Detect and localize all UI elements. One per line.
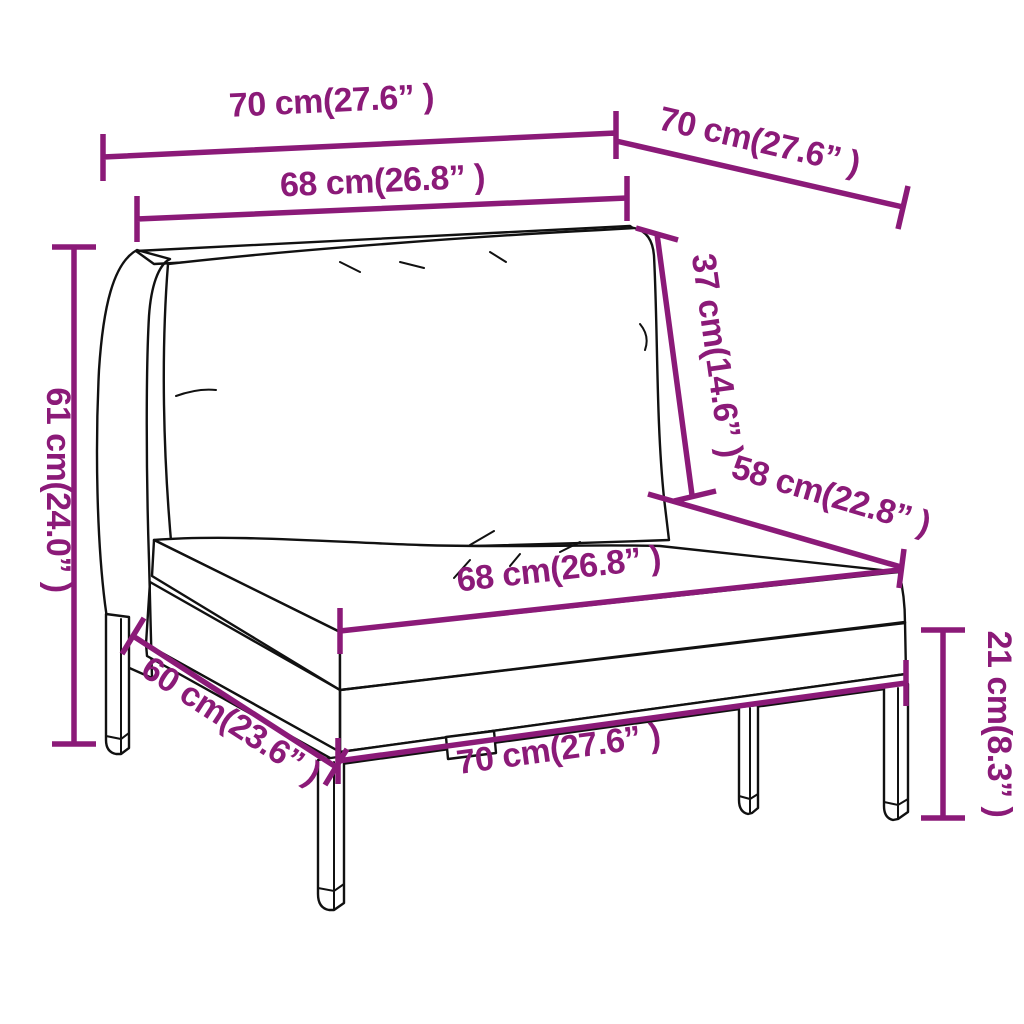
- dim-top-depth-label: 70 cm(27.6” ): [655, 100, 863, 183]
- sofa-dimension-drawing: 70 cm(27.6” ) 70 cm(27.6” ) 68 cm(26.8” …: [0, 0, 1024, 1024]
- rear-left-leg: [106, 614, 129, 754]
- dim-leg-height-label: 21 cm(8.3” ): [980, 631, 1018, 818]
- dim-overall-height: 61 cm(24.0” ): [39, 247, 96, 744]
- dim-base-depth-label: 60 cm(23.6” ): [135, 649, 328, 793]
- dim-leg-height-line: [921, 630, 965, 818]
- dim-leg-height: 21 cm(8.3” ): [921, 630, 1018, 818]
- dim-back-width-label: 68 cm(26.8” ): [279, 158, 486, 205]
- dim-back-cushion-height-label: 37 cm(14.6” ): [684, 251, 750, 459]
- dim-top-depth: 70 cm(27.6” ): [616, 100, 908, 229]
- back-cushion: [164, 228, 669, 552]
- product-dimension-diagram: 70 cm(27.6” ) 70 cm(27.6” ) 68 cm(26.8” …: [0, 0, 1024, 1024]
- dim-overall-height-label: 61 cm(24.0” ): [39, 387, 77, 592]
- dim-top-width-label: 70 cm(27.6” ): [228, 77, 435, 125]
